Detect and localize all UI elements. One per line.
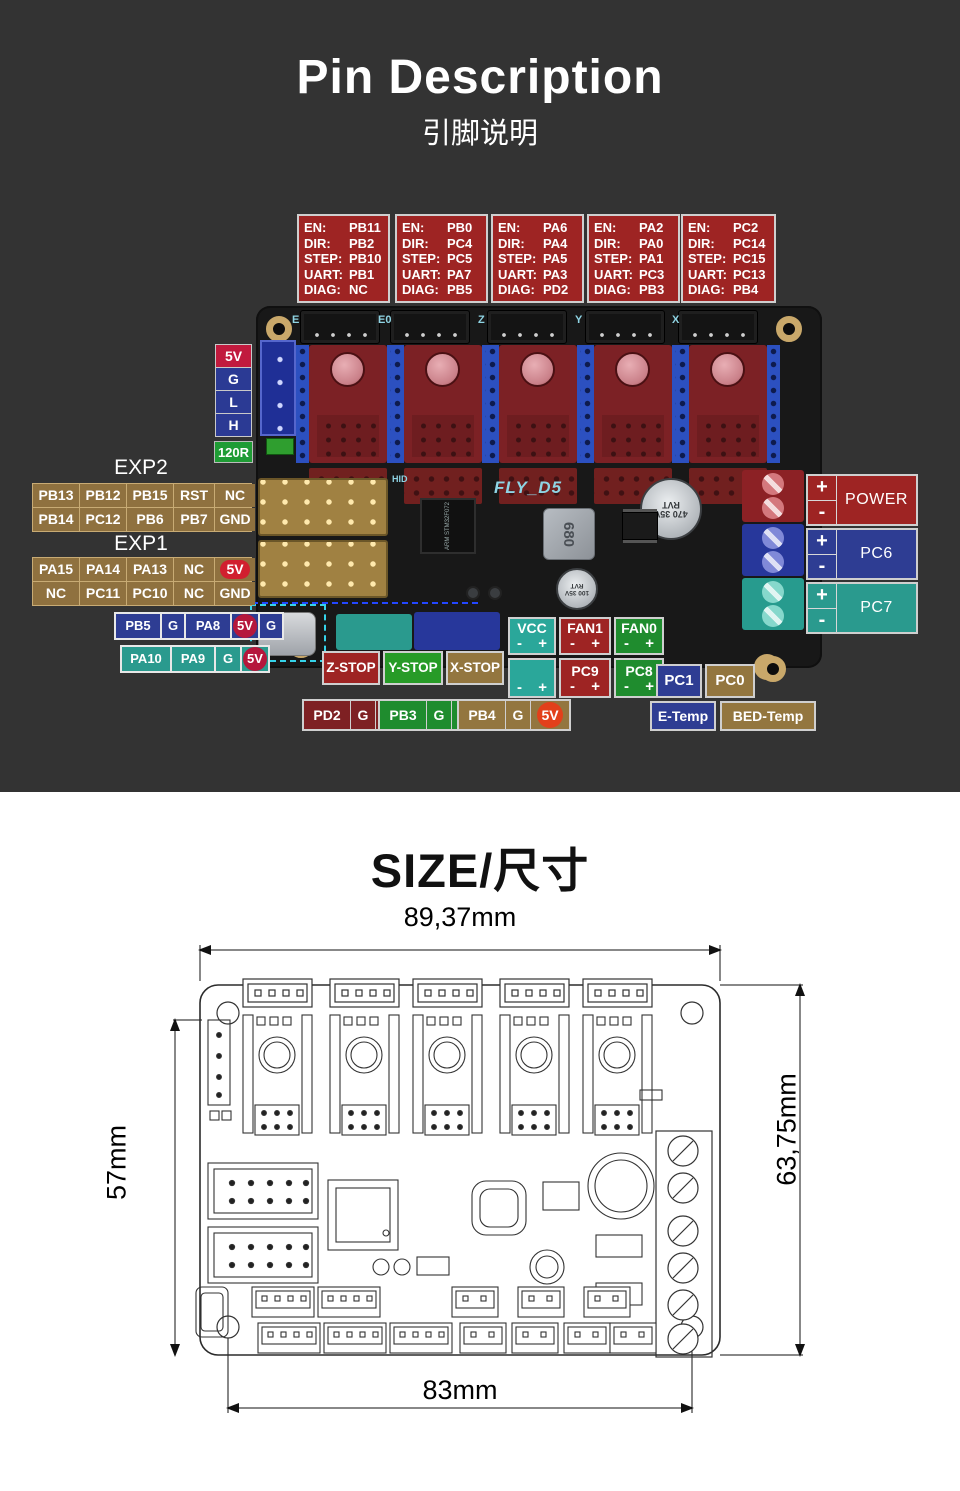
polarity: - + [510,636,554,652]
pin-cell: G [260,614,282,638]
pin-cell: PA9 [172,647,214,671]
exp1-connector [258,540,388,598]
pc0-label: PC0 [705,664,755,698]
stepper-driver-module [391,345,495,463]
pin-label: L [216,391,251,414]
pin-label: H [216,414,251,436]
fan0-label: FAN0 - + [614,617,664,655]
pin-cell: PA13 [127,558,173,581]
pin-cell: PB6 [127,508,173,531]
polarity: - + [616,636,662,652]
vcc-label: VCC - + [508,617,556,655]
electrolytic-capacitor-small: 100 35V RVT [556,568,598,610]
usb-pin-row-1: PB5 G PA8 5V G [114,612,284,640]
driver-pinout-box-e0: EN:PB0 DIR:PC4 STEP:PC5 UART:PA7 DIAG:PB… [395,214,488,303]
pin-cell: G [427,701,452,729]
pin-cell: 5V [215,558,255,581]
silkscreen-hid: HID [392,474,408,484]
silkscreen-port-x: X [672,314,679,326]
pin-cell: PB3 [380,701,427,729]
pin-description-section: Pin Description 引脚说明 EN:PB11 DIR:PB2 STE… [0,0,960,792]
minus-sign: - [808,609,836,633]
silkscreen-port-z: Z [478,314,485,326]
driver-capacitor [710,352,745,387]
pin-cell: PA8 [186,614,230,638]
motor-connector-y [585,310,665,344]
silkscreen-port-y: Y [575,314,582,326]
stepper-driver-module [486,345,590,463]
pcb-photo: E E0 Z Y X HID FLY_D5 ARM STM32F072 680 … [256,306,822,668]
x-stop-label: X-STOP [446,651,504,685]
pin-cell: G [351,701,376,729]
pc7-terminal-label: +- PC7 [806,582,918,634]
motor-connector-e [300,310,380,344]
driver-pinout-box-x: EN:PC2 DIR:PC14 STEP:PC15 UART:PC13 DIAG… [681,214,776,303]
pin-cell: PB14 [33,508,79,531]
motor-connector-x [678,310,758,344]
pin-cell: GND [215,582,255,605]
driver-pinout-box-z: EN:PA6 DIR:PA4 STEP:PA5 UART:PA3 DIAG:PD… [491,214,584,303]
bus-connector [260,340,296,436]
bottom-connector [336,614,412,650]
5v-circle: 5V [233,614,257,638]
exp1-title: EXP1 [32,532,250,556]
usb-pin-row-2: PA10 PA9 G 5V [120,645,270,673]
pin-cell: PD2 [304,701,351,729]
silkscreen-port-e0: E0 [378,314,391,326]
pin-cell: NC [174,558,214,581]
polarity: - + [561,679,609,695]
exp2-title: EXP2 [32,456,250,480]
pin-label: 5V [216,345,251,368]
pc9-label: PC9 - + [559,658,611,698]
pc6-terminal-label: +- PC6 [806,528,918,580]
exp1-table: PA15 PA14 PA13 NC 5V NC PC11 PC10 NC GND [32,557,252,606]
stepper-driver-module [296,345,400,463]
plus-sign: + [808,530,836,555]
pin-label: G [216,368,251,391]
driver-capacitor [330,352,365,387]
pin-cell: PC11 [80,582,126,605]
driver-capacitor [425,352,460,387]
pin-cell: PA10 [122,647,170,671]
pin-cell: 5V [531,701,569,729]
minus-sign: - [808,555,836,579]
exp2-table: PB13 PB12 PB15 RST NC PB14 PC12 PB6 PB7 … [32,483,252,532]
dimension-drawing [80,935,880,1480]
pin-cell: PB4 [459,701,506,729]
pin-cell: 5V [232,614,258,638]
5v-circle: 5V [243,647,267,671]
driver-capacitor [615,352,650,387]
bed-temp-label: BED-Temp [720,701,816,731]
fan1-label: FAN1 - + [559,617,611,655]
pc7-terminal [742,578,804,630]
bus-pin-labels: 5V G L H [215,344,252,437]
stepper-driver-module [676,345,780,463]
pin-cell: PB7 [174,508,214,531]
e-temp-label: E-Temp [650,701,716,731]
mcu-chip: ARM STM32F072 [420,498,476,554]
size-title: SIZE/尺寸 [0,832,960,901]
pin-cell: RST [174,484,214,507]
exp2-connector [258,478,388,536]
power-terminal [742,470,804,522]
pin-cell: PC10 [127,582,173,605]
minus-sign: - [808,501,836,525]
mounting-hole [266,316,292,342]
pin-cell: NC [215,484,255,507]
pin-cell: 5V [242,647,268,671]
silkscreen-board-name: FLY_D5 [494,478,562,498]
reset-button [466,586,480,600]
bottom-connector [414,612,500,650]
aux-connector-label: - + [508,658,556,698]
page-title: Pin Description [0,50,960,105]
page-subtitle: 引脚说明 [0,110,960,152]
pin-cell: G [162,614,184,638]
heater-row-pb4: PB4 G 5V [457,699,571,731]
pin-cell: G [216,647,240,671]
dimension-width-top: 89,37mm [300,902,620,933]
driver-capacitor [520,352,555,387]
pin-cell: PA14 [80,558,126,581]
pin-cell: PB13 [33,484,79,507]
pin-cell: PC12 [80,508,126,531]
mounting-hole [776,316,802,342]
z-stop-label: Z-STOP [322,651,380,685]
termination-jumper [266,438,294,455]
soic-chip [622,512,658,540]
size-section: SIZE/尺寸 89,37mm 57mm 63,75mm 83mm [0,792,960,1491]
polarity: - + [561,636,609,652]
pin-cell: PB5 [116,614,160,638]
pin-cell: PA15 [33,558,79,581]
5v-pill: 5V [220,560,250,579]
boot-button [488,586,502,600]
5v-circle: 5V [537,702,563,728]
driver-pinout-box-e: EN:PB11 DIR:PB2 STEP:PB10 UART:PB1 DIAG:… [297,214,390,303]
y-stop-label: Y-STOP [383,651,443,685]
pin-cell: NC [174,582,214,605]
pin-cell: GND [215,508,255,531]
motor-connector-z [487,310,567,344]
silkscreen-port-e: E [292,314,299,326]
plus-sign: + [808,584,836,609]
power-terminal-label: +- POWER [806,474,918,526]
plus-sign: + [808,476,836,501]
pin-cell: G [506,701,531,729]
pin-cell: PB15 [127,484,173,507]
pc1-label: PC1 [656,664,702,698]
pc6-terminal [742,524,804,576]
mounting-hole [760,656,786,682]
pin-cell: PB12 [80,484,126,507]
power-inductor: 680 [543,508,595,560]
polarity: - + [517,680,547,696]
pin-cell: NC [33,582,79,605]
motor-connector-e0 [390,310,470,344]
driver-pinout-box-y: EN:PA2 DIR:PA0 STEP:PA1 UART:PC3 DIAG:PB… [587,214,680,303]
stepper-driver-module [581,345,685,463]
